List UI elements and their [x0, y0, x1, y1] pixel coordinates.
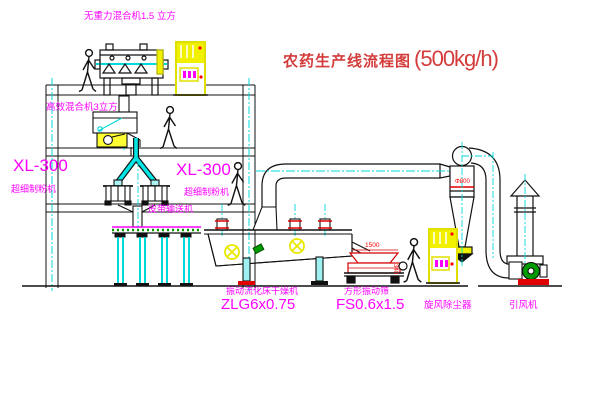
label-dryer-name: 振动流化床干燥机 — [226, 287, 298, 296]
label-mill-right-model: XL-300 — [176, 161, 231, 178]
label-screen-name: 方形振动筛 — [344, 287, 389, 296]
mill-right-drawing — [140, 180, 170, 205]
title-capacity: (500kg/h) — [414, 46, 498, 72]
gravity-mixer-drawing — [95, 44, 168, 95]
fan-drawing — [509, 262, 549, 285]
control-cabinet-2 — [426, 229, 460, 283]
dim-screen-height: 340 — [392, 264, 398, 274]
mill-left-drawing — [103, 180, 133, 205]
label-mill-left-name: 超细制粉机 — [11, 185, 56, 194]
label-mill-right-name: 超细制粉机 — [184, 188, 229, 197]
control-cabinet-1 — [173, 42, 208, 95]
label-dryer-model: ZLG6x0.75 — [221, 297, 295, 312]
label-screen-model: FS0.6x1.5 — [336, 297, 404, 312]
label-cyclone: 旋风除尘器 — [424, 301, 472, 311]
process-flow-diagram: 农药生产线流程图 (500kg/h) 无重力混合机1.5 立方 高效混合机3立方… — [0, 0, 600, 403]
stack-drawing — [507, 174, 543, 270]
dim-screen-length: 1500 — [365, 243, 379, 250]
label-gravity-mixer: 无重力混合机1.5 立方 — [84, 12, 176, 22]
exhaust-duct — [256, 164, 456, 207]
dim-cyclone-diameter: Φ800 — [455, 179, 470, 185]
control-display — [435, 260, 448, 267]
label-efficient-mixer: 高效混合机3立方 — [46, 103, 118, 113]
label-belt-conveyor: 皮带输送机 — [148, 205, 193, 214]
control-display — [183, 71, 196, 78]
diagram-title: 农药生产线流程图 (500kg/h) — [283, 46, 498, 72]
label-mill-left-model: XL-300 — [13, 157, 68, 174]
title-chinese: 农药生产线流程图 — [283, 50, 411, 71]
belt-conveyor-drawing — [112, 227, 201, 286]
label-fan: 引风机 — [509, 301, 538, 311]
